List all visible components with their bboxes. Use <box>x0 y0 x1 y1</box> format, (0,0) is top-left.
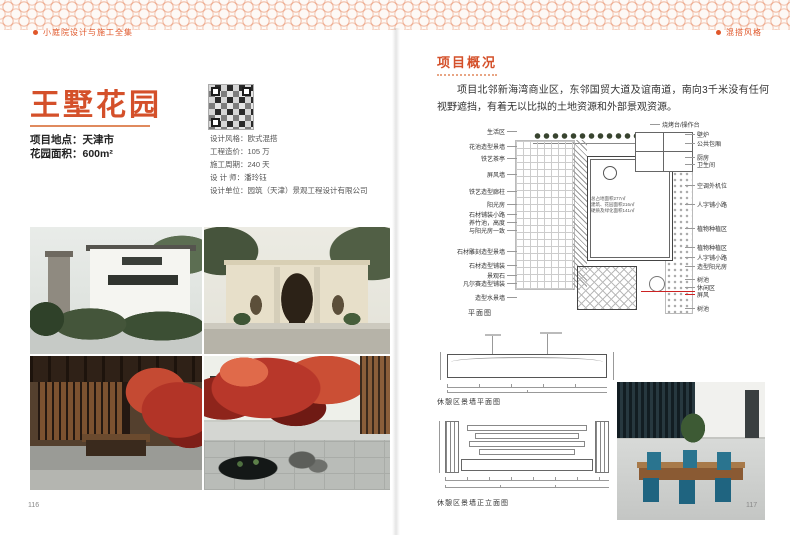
elev-bar <box>469 441 585 447</box>
plan-label: 造型阳光房 <box>683 263 783 270</box>
project-title: 王墅花园 <box>30 80 162 124</box>
plan-caption: 平面图 <box>468 308 492 318</box>
overview-paragraph: 项目北邻新海湾商业区，东邻国贸大道及谊南道，南向3千米没有任何视野遮挡，有着无以… <box>437 82 769 116</box>
plan-label-red: 屏风 <box>683 291 783 298</box>
plan-label: 烧烤台/操作台 <box>648 121 748 128</box>
page-number-right: 117 <box>746 502 757 509</box>
plan-label: 空调外机位 <box>683 182 783 189</box>
plan-label: 养竹池，高度 <box>437 219 519 226</box>
plan-label: 树池 <box>683 305 783 312</box>
title-underline <box>30 125 150 127</box>
plan-label: 屏风墙 <box>437 171 519 178</box>
wall-elevation-caption: 休憩区景墙正立面图 <box>437 498 509 508</box>
plan-label: 凡尔赛造型铺装 <box>437 280 519 287</box>
plan-label: 人字铺小路 <box>683 254 783 261</box>
bullet-dot-icon <box>33 30 38 35</box>
photo-outdoor-dining <box>617 382 765 520</box>
overview-heading: 项目概况 <box>437 52 497 76</box>
page-number-left: 116 <box>28 502 39 509</box>
plan-label: 卫生间 <box>683 161 783 168</box>
plan-label: 铁艺茶亭 <box>437 155 519 162</box>
plan-label: 铁艺造型廊柱 <box>437 188 519 195</box>
info-firm: 设计单位：园筑（天津）景观工程设计有限公司 <box>210 185 368 196</box>
plan-area-note: 总占地面积277㎡ 建筑、花园面积216㎡ 硬质及绿化面积141㎡ <box>591 196 661 214</box>
wall-elevation-drawing <box>437 413 619 495</box>
elev-left-band <box>445 421 459 473</box>
dim-leader <box>547 334 548 354</box>
elev-right-band <box>595 421 609 473</box>
info-duration: 施工周期：240 天 <box>210 159 270 170</box>
elev-bar <box>479 449 575 455</box>
elev-bar <box>467 425 587 431</box>
info-style: 设计风格：欧式混搭 <box>210 133 278 144</box>
wall-plan-drawing <box>437 334 619 394</box>
plan-label: 人字铺小路 <box>683 201 783 208</box>
plan-label: 植物种植区 <box>683 225 783 232</box>
photo-arched-wall <box>204 227 390 354</box>
dim-line-bottom2 <box>447 390 607 393</box>
plan-carved-wall <box>577 266 637 310</box>
book-spread: 小庭院设计与施工全集 混搭风格 王墅花园 项目地点：天津市 花园面积：600m²… <box>0 0 790 535</box>
plan-label: 造型水景墙 <box>437 294 519 301</box>
plan-label: 公共包厢 <box>683 140 783 147</box>
info-designer: 设 计 师：潘玲钰 <box>210 172 267 183</box>
qr-finder-icon <box>211 87 220 96</box>
page-gutter <box>392 28 400 535</box>
plan-label: 树池 <box>683 276 783 283</box>
photo-maple-water-feature <box>204 356 390 490</box>
elev-base <box>461 459 593 471</box>
plan-label: 阳光房 <box>437 201 519 208</box>
wall-curve <box>451 357 603 367</box>
wall-plan-caption: 休憩区景墙平面图 <box>437 397 501 407</box>
qr-finder-icon <box>211 118 220 127</box>
plan-label: 石材造型铺装 <box>437 262 519 269</box>
photo-villa-entrance <box>30 227 202 354</box>
running-header-right: 混搭风格 <box>711 27 762 38</box>
qr-code <box>208 84 254 130</box>
plan-round-feature <box>603 166 617 180</box>
dim-leader <box>492 336 493 354</box>
dim-line-bottom <box>447 384 607 388</box>
dim-tag <box>540 332 562 334</box>
dim-tag <box>485 334 501 336</box>
project-area: 花园面积：600m² <box>30 146 113 161</box>
bullet-dot-icon <box>716 30 721 35</box>
plan-tree-circle <box>649 276 665 292</box>
plan-paving-grid <box>515 140 575 290</box>
qr-finder-icon <box>242 87 251 96</box>
plan-label: 花池造型景墙 <box>437 143 519 150</box>
photo-collage <box>30 227 390 490</box>
chapter-title: 混搭风格 <box>726 27 762 38</box>
plan-label: 石材铺装小路 <box>437 211 519 218</box>
plan-label: 生活区 <box>437 128 519 135</box>
site-plan-drawing: 总占地面积277㎡ 建筑、花园面积216㎡ 硬质及绿化面积141㎡ <box>515 126 693 316</box>
elev-bar <box>475 433 579 439</box>
running-header-left: 小庭院设计与施工全集 <box>28 27 133 38</box>
project-location: 项目地点：天津市 <box>30 132 114 147</box>
dim-line-right <box>613 352 614 380</box>
plan-label: 石材雕刻造型景墙 <box>437 248 519 255</box>
plan-label: 与阳光房一致 <box>437 227 519 234</box>
plan-label: 壁炉 <box>683 131 783 138</box>
elev-dim-left <box>439 421 440 473</box>
plan-label: 植物种植区 <box>683 244 783 251</box>
dim-line-left <box>440 352 441 380</box>
elev-dim-bottom <box>445 477 609 481</box>
plan-label: 景观石 <box>437 272 519 279</box>
photo-pergola-maple <box>30 356 202 490</box>
info-cost: 工程造价：105 万 <box>210 146 270 157</box>
elev-dim-bottom2 <box>445 485 609 488</box>
decorative-scale-pattern <box>0 0 790 30</box>
book-title: 小庭院设计与施工全集 <box>43 27 133 38</box>
